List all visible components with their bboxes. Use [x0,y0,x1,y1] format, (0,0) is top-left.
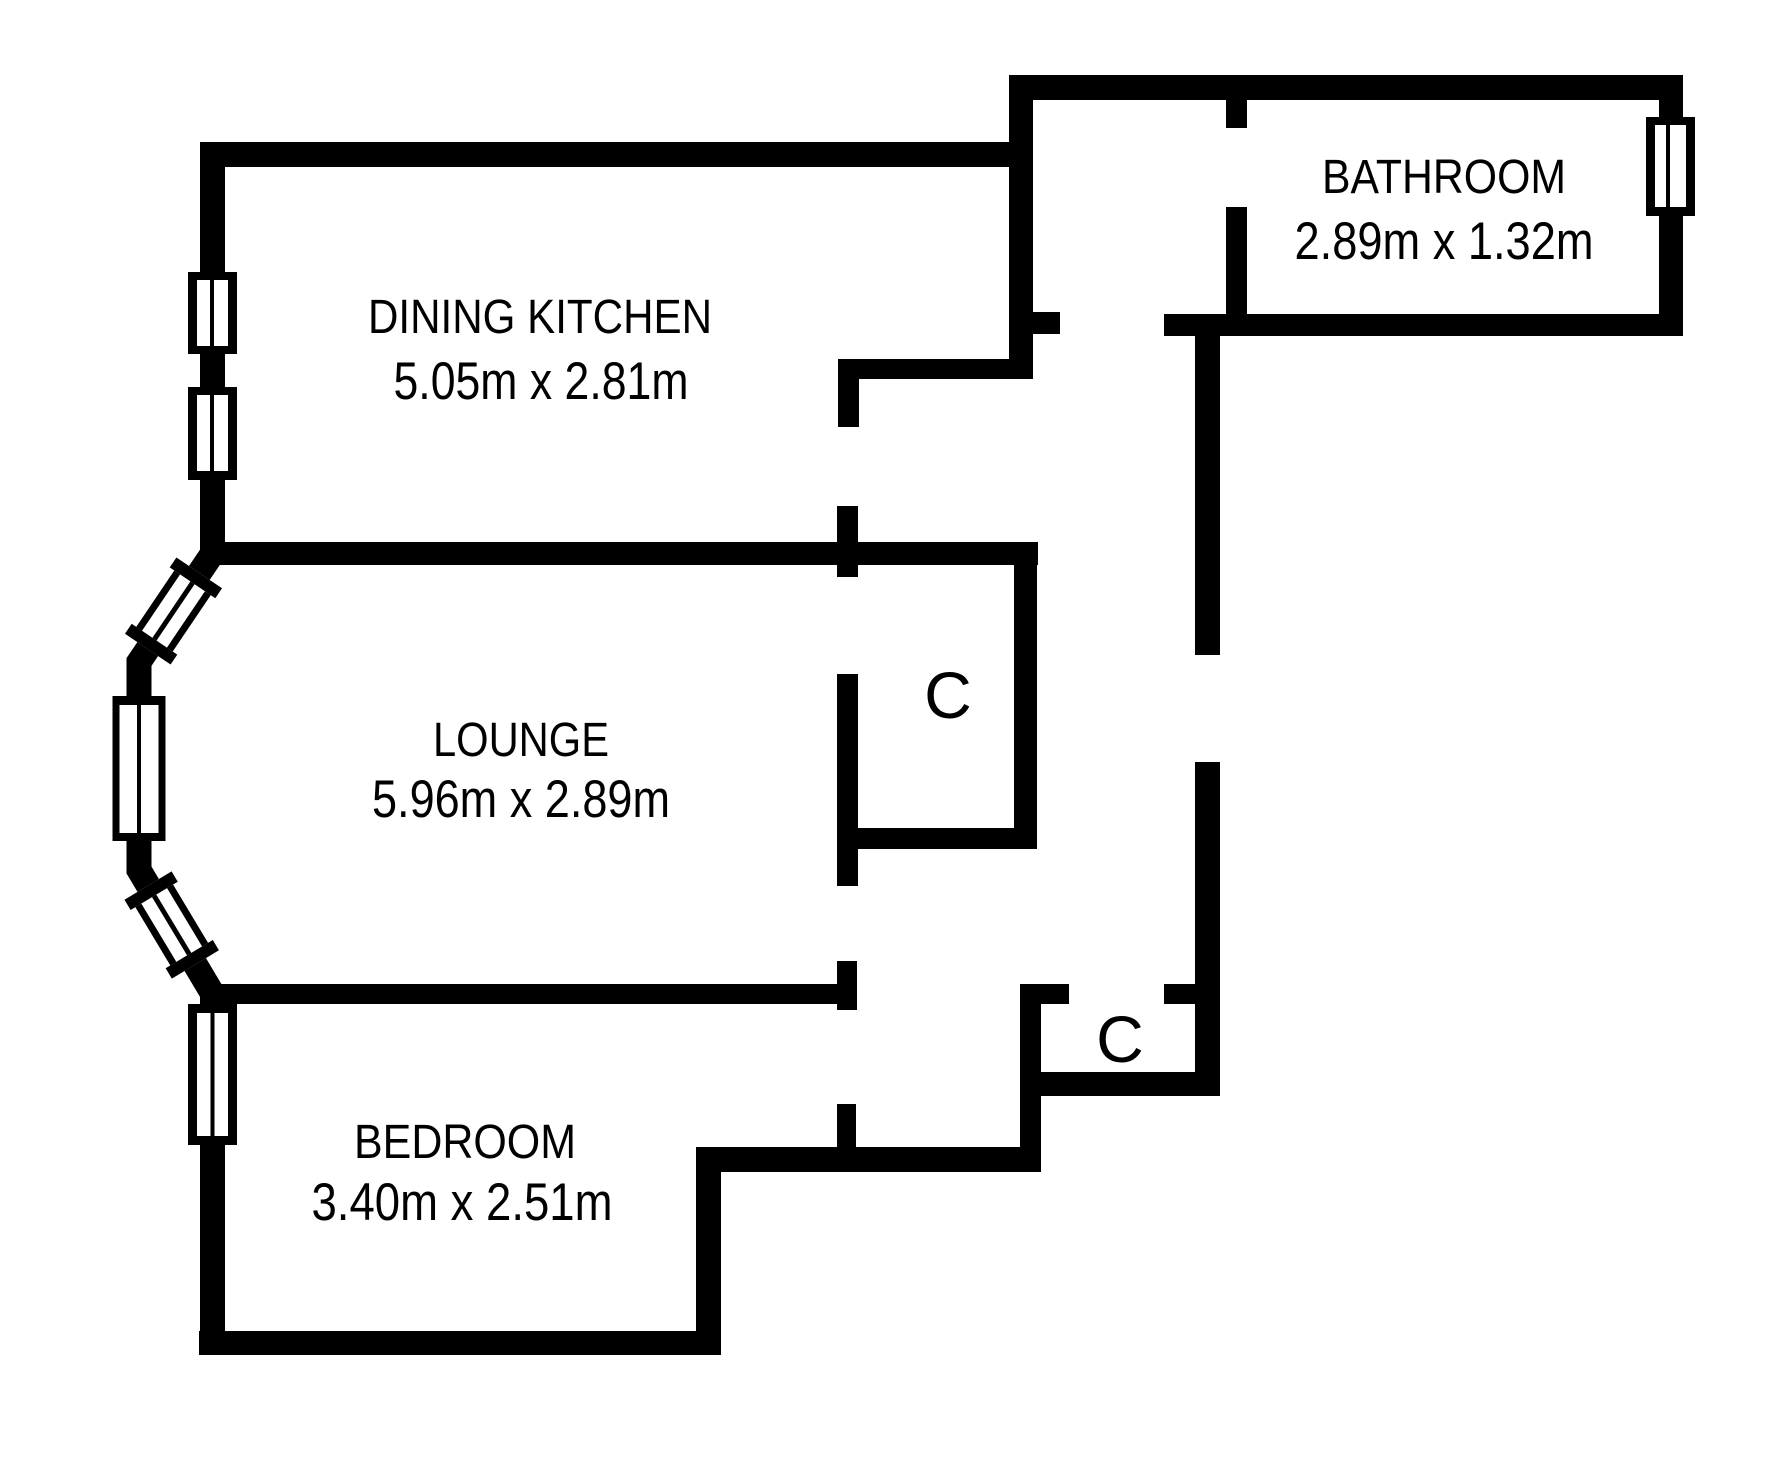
svg-text:C: C [1096,1002,1144,1076]
svg-text:BATHROOM: BATHROOM [1322,151,1566,204]
svg-text:5.05m x 2.81m: 5.05m x 2.81m [394,352,689,411]
svg-text:DINING KITCHEN: DINING KITCHEN [368,291,712,344]
svg-text:LOUNGE: LOUNGE [433,714,609,767]
svg-text:BEDROOM: BEDROOM [354,1116,576,1169]
svg-text:5.96m x 2.89m: 5.96m x 2.89m [372,770,670,829]
svg-text:C: C [924,658,972,732]
svg-text:2.89m x 1.32m: 2.89m x 1.32m [1295,212,1594,271]
svg-text:3.40m x 2.51m: 3.40m x 2.51m [312,1173,613,1232]
